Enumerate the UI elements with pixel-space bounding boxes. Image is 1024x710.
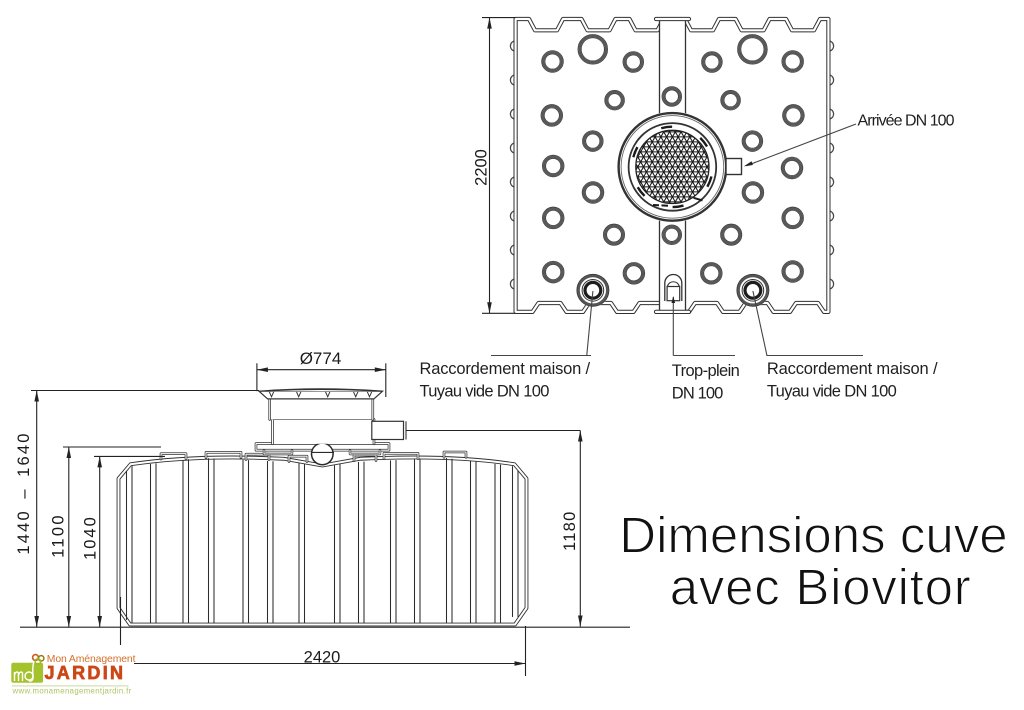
svg-text:1100: 1100 — [50, 513, 68, 558]
svg-text:Dimensions cuve: Dimensions cuve — [619, 507, 1007, 564]
svg-text:Tuyau vide DN 100: Tuyau vide DN 100 — [767, 383, 897, 401]
svg-text:Raccordement maison /: Raccordement maison / — [420, 360, 591, 378]
svg-text:www.monamenagementjardin.fr: www.monamenagementjardin.fr — [12, 687, 132, 696]
svg-text:DN 100: DN 100 — [672, 385, 723, 403]
svg-text:avec Biovitor: avec Biovitor — [670, 558, 972, 615]
svg-text:2200: 2200 — [473, 149, 491, 186]
svg-text:1180: 1180 — [561, 510, 579, 551]
svg-text:1440 – 1640: 1440 – 1640 — [15, 431, 33, 554]
svg-text:Ø774: Ø774 — [300, 349, 342, 368]
svg-text:Trop-plein: Trop-plein — [672, 362, 740, 380]
svg-text:1040: 1040 — [82, 515, 100, 560]
svg-text:2420: 2420 — [304, 648, 341, 666]
svg-text:Tuyau vide DN 100: Tuyau vide DN 100 — [420, 383, 550, 401]
svg-text:JARDIN: JARDIN — [45, 663, 126, 683]
svg-text:Raccordement maison /: Raccordement maison / — [767, 360, 938, 378]
svg-text:Arrivée DN 100: Arrivée DN 100 — [858, 113, 955, 130]
